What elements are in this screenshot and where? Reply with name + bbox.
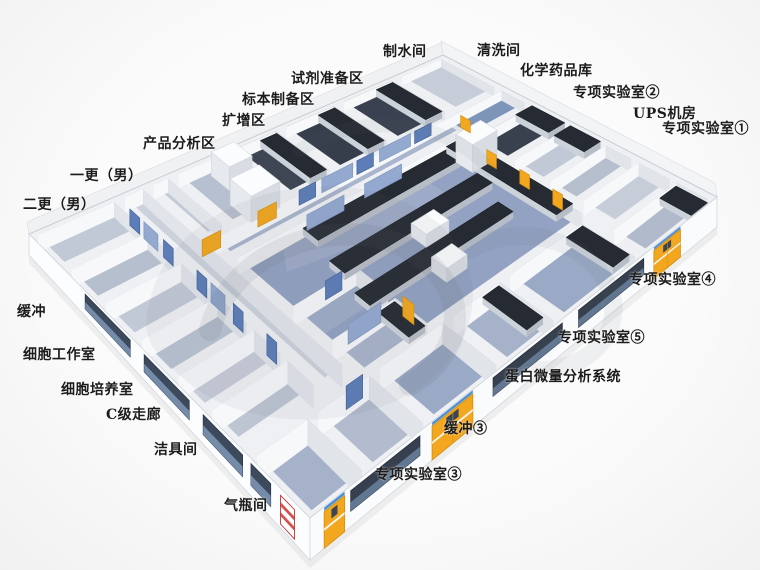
room-label-buffer: 缓冲: [17, 301, 46, 321]
room-label-special-lab-5: 专项实验室⑤: [558, 327, 645, 347]
room-label-reagent-prep: 试剂准备区: [291, 68, 364, 88]
room-label-c-grade-corridor: C级走廊: [106, 404, 161, 424]
room-label-buffer-3: 缓冲③: [444, 418, 488, 438]
room-label-special-lab-1: 专项实验室①: [662, 118, 749, 138]
room-label-protein-system: 蛋白微量分析系统: [505, 366, 621, 386]
room-label-special-lab-2: 专项实验室②: [573, 82, 660, 102]
room-label-cleaning-tools: 洁具间: [154, 439, 198, 459]
room-label-cell-workroom: 细胞工作室: [23, 344, 96, 364]
room-label-special-lab-3: 专项实验室③: [375, 464, 462, 484]
room-label-change-room-2: 二更（男）: [23, 194, 96, 214]
room-label-cleaning-room: 清洗间: [477, 40, 521, 60]
room-label-gas-cylinder: 气瓶间: [224, 495, 268, 515]
room-label-amplification: 扩增区: [222, 110, 266, 130]
room-label-change-room-1: 一更（男）: [70, 165, 143, 185]
room-label-special-lab-4: 专项实验室④: [629, 269, 716, 289]
room-label-chemical-store: 化学药品库: [520, 60, 593, 80]
room-label-specimen-prep: 标本制备区: [242, 89, 315, 109]
room-label-water-room: 制水间: [383, 41, 427, 61]
lab-floorplan-stage: 制水间 清洗间 化学药品库 专项实验室② UPS机房 专项实验室① 试剂准备区 …: [0, 0, 760, 570]
room-label-product-analysis: 产品分析区: [143, 133, 216, 153]
room-label-cell-culture: 细胞培养室: [61, 379, 134, 399]
